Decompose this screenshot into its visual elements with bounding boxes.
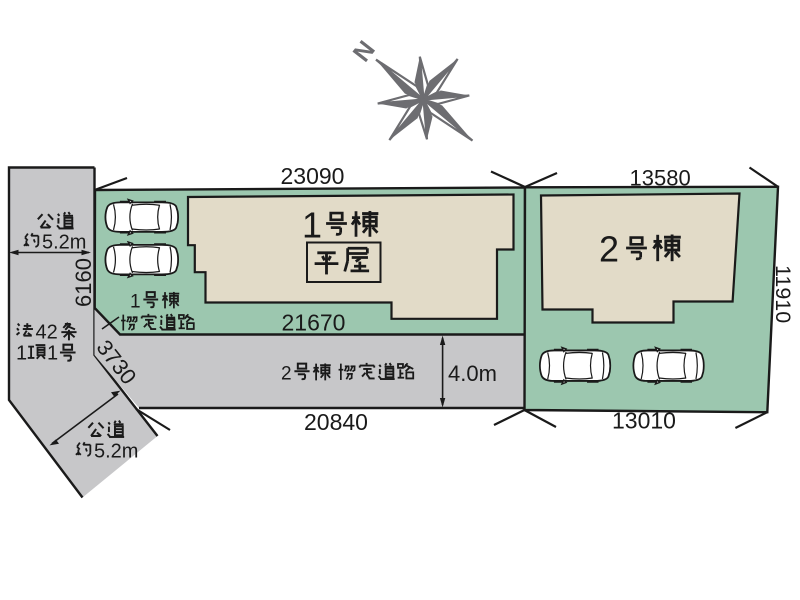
svg-text:5.2m: 5.2m <box>42 232 86 254</box>
svg-text:42: 42 <box>36 322 58 344</box>
svg-text:2: 2 <box>599 229 619 270</box>
svg-text:1: 1 <box>16 343 27 365</box>
svg-text:1: 1 <box>302 205 322 246</box>
svg-text:21670: 21670 <box>282 310 346 336</box>
svg-text:6160: 6160 <box>71 258 96 307</box>
svg-text:1: 1 <box>130 292 141 313</box>
svg-text:N: N <box>348 36 381 67</box>
svg-text:20840: 20840 <box>304 409 368 435</box>
svg-text:13580: 13580 <box>630 166 691 191</box>
svg-text:11910: 11910 <box>771 265 795 323</box>
svg-text:4.0m: 4.0m <box>448 361 497 386</box>
svg-text:13010: 13010 <box>612 408 676 434</box>
svg-text:5.2m: 5.2m <box>94 441 138 463</box>
svg-text:1: 1 <box>47 343 58 365</box>
svg-text:2: 2 <box>281 364 292 385</box>
svg-text:23090: 23090 <box>281 163 345 189</box>
